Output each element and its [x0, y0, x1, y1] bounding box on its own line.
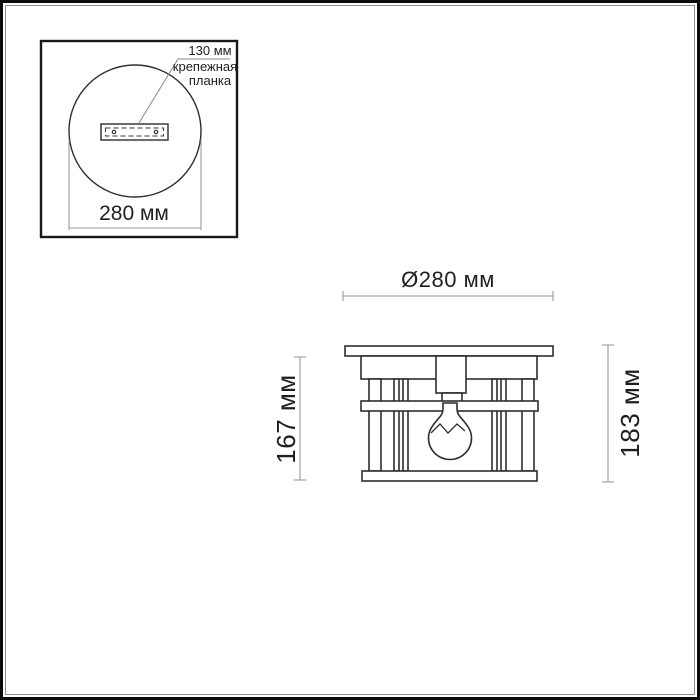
cage-post-inner-right-2 — [501, 379, 506, 471]
inset-diameter-label: 280 мм — [64, 203, 204, 225]
bracket-name-label-line1: крепежная — [155, 60, 255, 74]
socket-column — [436, 356, 466, 393]
diameter-label: Ø280 мм — [348, 268, 548, 292]
technical-drawing — [0, 0, 700, 700]
cage-post-inner-left-2 — [403, 379, 408, 471]
body-height-label: 167 мм — [272, 349, 300, 489]
cage-post-inner-left-1 — [394, 379, 399, 471]
ceiling-plate — [345, 346, 553, 356]
diameter-dimension — [343, 291, 553, 301]
cage-post-outer-right — [522, 379, 534, 471]
cage-post-inner-right-1 — [492, 379, 497, 471]
bracket-screw-hole-left — [112, 130, 115, 133]
lamp-fixture — [345, 346, 553, 481]
bracket-screw-hole-right — [154, 130, 157, 133]
bracket-name-label-line2: планка — [160, 74, 260, 88]
cage-bottom-band — [362, 471, 537, 481]
bracket-size-label: 130 мм — [160, 44, 260, 58]
product-dimension-sheet: { "labels": { "inset": { "bracket_size":… — [0, 0, 700, 700]
total-height-dimension — [602, 345, 614, 482]
cage-post-outer-left — [369, 379, 381, 471]
total-height-label: 183 мм — [616, 343, 644, 483]
front-view — [294, 291, 614, 482]
